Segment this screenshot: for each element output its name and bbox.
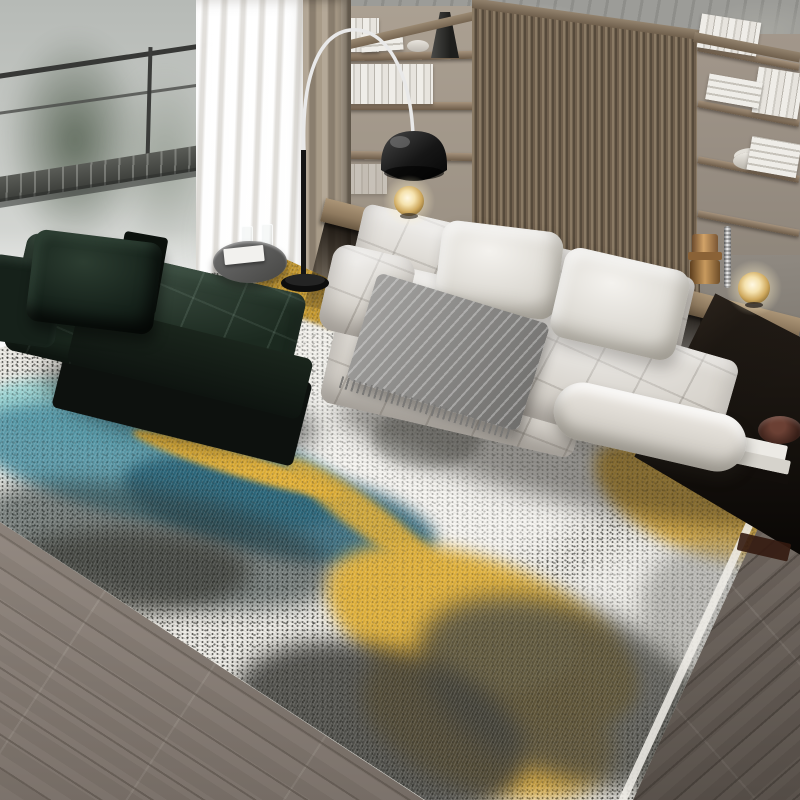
arc-floor-lamp [0,0,800,800]
dome-highlight [390,136,410,148]
glow-sphere-lamp [394,186,424,216]
glow-sphere-base [745,302,763,308]
glow-sphere-base [400,213,418,219]
lamp-base-highlight [285,274,325,286]
living-room-photo [0,0,800,800]
glow-sphere-lamp [738,272,770,304]
lamp-pole [301,150,306,284]
lamp-arc [304,30,413,152]
